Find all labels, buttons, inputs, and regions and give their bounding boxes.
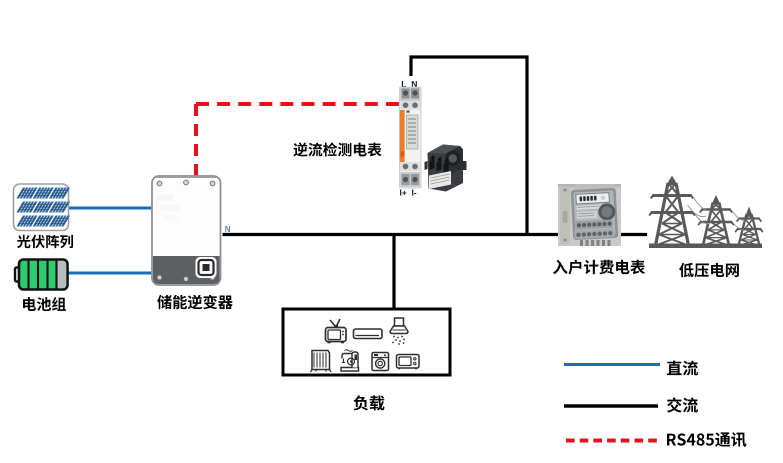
svg-text:I-: I- — [412, 188, 417, 198]
svg-text:I+: I+ — [400, 188, 407, 198]
svg-text:N: N — [225, 225, 231, 234]
